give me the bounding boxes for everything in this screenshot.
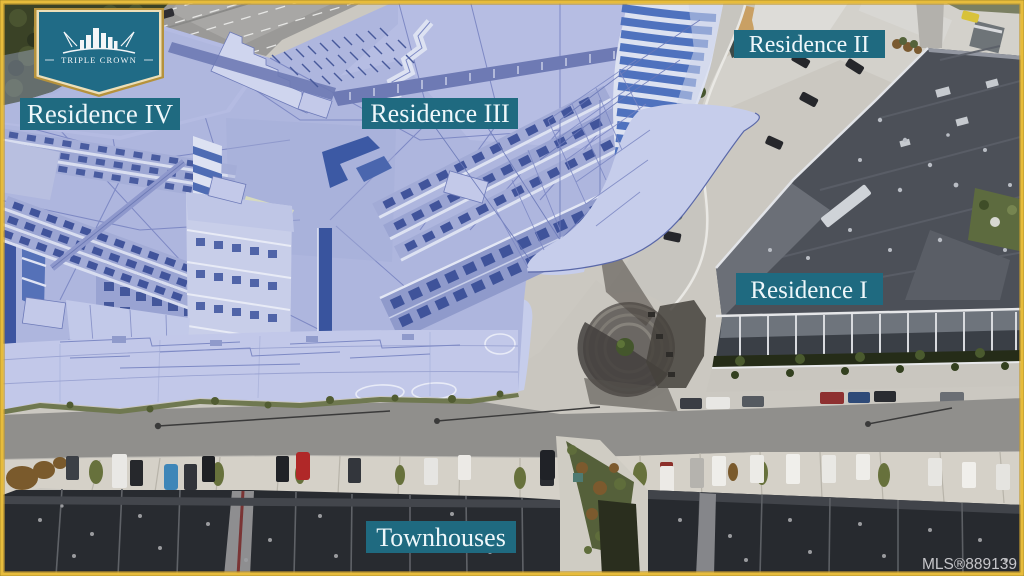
svg-text:Residence I: Residence I xyxy=(750,277,867,304)
svg-text:MLS®889139: MLS®889139 xyxy=(922,556,1017,573)
svg-text:Residence II: Residence II xyxy=(749,32,870,58)
svg-text:TRIPLE CROWN: TRIPLE CROWN xyxy=(61,55,137,65)
svg-text:Residence III: Residence III xyxy=(370,99,509,128)
svg-text:Residence IV: Residence IV xyxy=(27,99,174,129)
svg-text:Townhouses: Townhouses xyxy=(376,523,506,552)
